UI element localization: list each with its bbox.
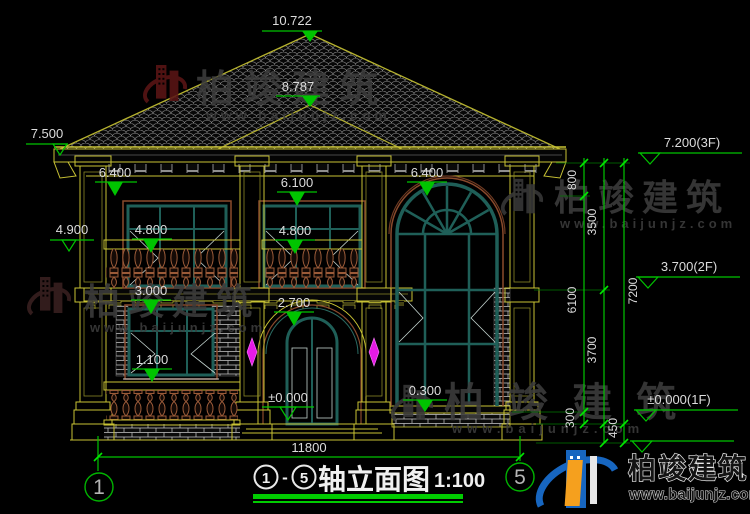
title-block: 1 - 5 轴立面图 1:100 xyxy=(253,463,485,503)
dim-6100: 6100 xyxy=(565,286,579,313)
dim-3700: 3700 xyxy=(585,336,599,363)
dim-3500: 3500 xyxy=(585,208,599,235)
dim-level-2f: 3.700(2F) xyxy=(661,259,717,274)
dim-rail2f-left: 4.800 xyxy=(135,222,168,237)
watermark-brand: 柏竣建筑 xyxy=(554,177,730,218)
title-axis-to: 5 xyxy=(300,470,308,487)
watermark-right: 柏竣建筑 www.baijunjz.com xyxy=(503,177,736,231)
magenta-ornament xyxy=(369,338,379,366)
dim-arch-top: 6.400 xyxy=(411,165,444,180)
axis-right-number: 5 xyxy=(514,466,526,489)
title-separator: - xyxy=(282,468,288,487)
dim-left-mid: 4.900 xyxy=(56,222,89,237)
corporate-logo: 柏竣建筑 www.baijunjz.com xyxy=(539,450,750,508)
eave-end-right xyxy=(544,162,566,178)
dim-level-3f: 7.200(3F) xyxy=(664,135,720,150)
logo-building-icon xyxy=(565,450,597,508)
dim-level-1f: ±0.000(1F) xyxy=(647,392,711,407)
dim-win2f-top: 6.100 xyxy=(281,175,314,190)
dim-800: 800 xyxy=(565,170,579,190)
dim-300: 300 xyxy=(563,408,577,428)
watermark-brand: 柏竣建筑 xyxy=(84,281,260,322)
brick-base xyxy=(104,424,240,440)
dim-7200: 7200 xyxy=(626,277,640,304)
dim-entry-arch: 2.700 xyxy=(278,295,311,310)
drawing-title: 轴立面图 xyxy=(318,463,430,495)
dim-450: 450 xyxy=(606,418,620,438)
axis-left-number: 1 xyxy=(93,476,105,499)
watermark-url: www.baijunjz.com xyxy=(89,320,266,335)
dim-balcony: 3.000 xyxy=(135,283,168,298)
dim-porch-peak: 8.787 xyxy=(282,79,315,94)
dim-arch-sill: 0.300 xyxy=(409,383,442,398)
dentil-band xyxy=(100,164,540,173)
dim-floor: ±0.000 xyxy=(268,390,308,405)
logo-brand-text: 柏竣建筑 xyxy=(628,452,748,484)
drawing-canvas: 柏竣建筑 www.baijunjz.com 柏竣建筑 www.baijunjz.… xyxy=(0,0,750,514)
dim-soffit-left: 6.400 xyxy=(99,165,132,180)
logo-url-text: www.baijunjz.com xyxy=(628,487,750,503)
cad-elevation-drawing: 柏竣建筑 www.baijunjz.com 柏竣建筑 www.baijunjz.… xyxy=(0,0,750,514)
dim-left-eave: 7.500 xyxy=(31,126,64,141)
dim-peak: 10.722 xyxy=(272,13,312,28)
title-axis-from: 1 xyxy=(262,470,270,487)
drawing-scale: 1:100 xyxy=(434,470,485,492)
dim-rail2f-center: 4.800 xyxy=(279,223,312,238)
arched-window xyxy=(389,176,505,406)
dim-total-width: 11800 xyxy=(291,440,326,455)
eave-end-left xyxy=(54,162,76,178)
dim-rail1f: 1.100 xyxy=(136,352,169,367)
magenta-ornament xyxy=(247,338,257,366)
watermark-url: www.baijunjz.com xyxy=(205,107,391,123)
